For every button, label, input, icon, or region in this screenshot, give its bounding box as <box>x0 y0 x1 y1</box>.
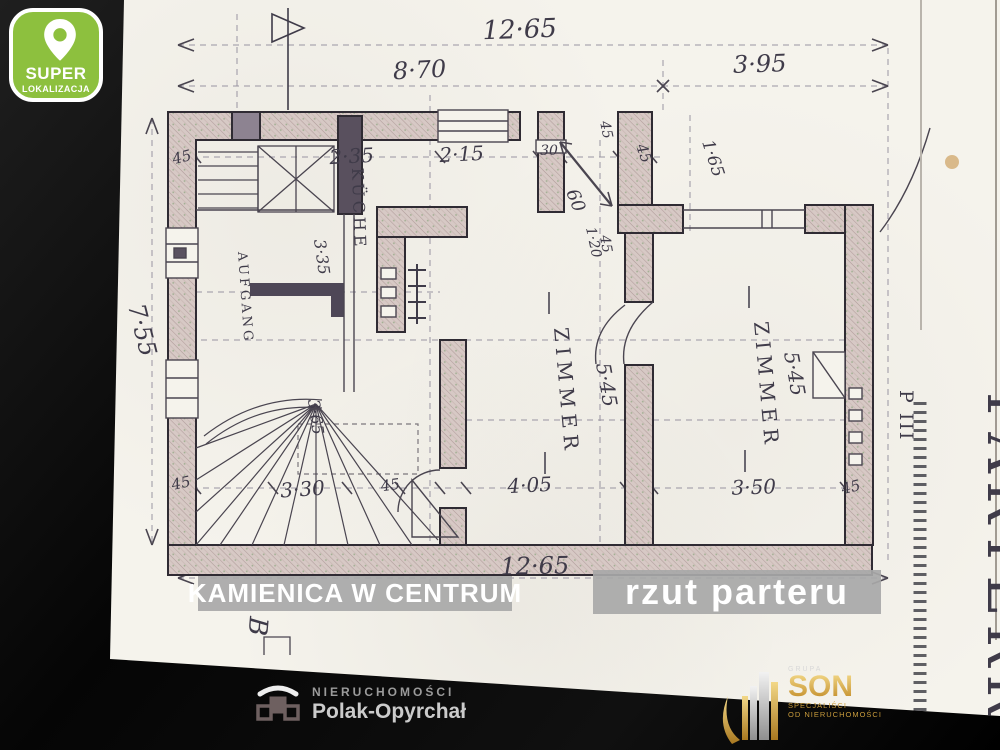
dimension-labels: 12·65 8·70 3·95 7·55 12·65 2·35 2·15 30 … <box>122 14 862 581</box>
son-tagline1: SPECJALIŚCI <box>788 701 882 710</box>
agency-line2: Polak-Opyrchał <box>312 700 466 724</box>
badge-subtitle: LOKALIZACJA <box>13 84 99 94</box>
dim-kitchen-d: 3·35 <box>310 238 334 276</box>
dim-top-right: 3·95 <box>733 49 787 79</box>
dim-stair-330: 3·30 <box>279 475 325 502</box>
super-location-badge: SUPER LOKALIZACJA <box>9 8 103 102</box>
dim-room1-w: 4·05 <box>506 472 553 498</box>
agency-logo-icon <box>254 682 302 726</box>
dim-room2-w: 3·50 <box>731 474 777 500</box>
son-name: SON <box>788 673 882 701</box>
sheet-code: P III <box>895 390 917 441</box>
thin-partitions <box>196 210 354 392</box>
north-arrow-icon <box>272 8 304 110</box>
dim-hall-545: 5·45 <box>591 361 622 409</box>
dim-kitchen-w: 2·35 <box>328 143 375 169</box>
dim-wing-165: 1·65 <box>697 137 728 179</box>
dim-45-b: 45 <box>596 119 616 141</box>
hall-label: AUFGANG <box>234 250 255 344</box>
dim-45-center: 45 <box>596 233 615 254</box>
dim-niche-30: 30 <box>540 143 558 159</box>
corner-note: B <box>241 614 273 637</box>
dim-top-left: 8·70 <box>392 55 447 86</box>
dim-top-total: 12·65 <box>482 14 557 47</box>
location-pin-icon <box>13 14 107 64</box>
agency-line1: NIERUCHOMOŚCI <box>312 685 466 699</box>
dim-lobby-60: 60 <box>561 186 589 215</box>
dim-room2-545: 5·45 <box>779 350 810 398</box>
group-logo-son: GRUPA SON SPECJALIŚCI OD NIERUCHOMOŚCI <box>718 666 882 750</box>
room-left-label: ZIMMER <box>549 326 584 456</box>
dim-left-total: 7·55 <box>122 301 162 360</box>
construction-lines <box>152 14 888 585</box>
son-tagline2: OD NIERUCHOMOŚCI <box>788 710 882 719</box>
property-caption: KAMIENICA W CENTRUM <box>198 576 512 611</box>
room-kitchen-label: KÜCHE <box>348 167 371 250</box>
dim-45-bb: 45 <box>379 475 401 496</box>
son-building-icon <box>718 666 784 750</box>
upper-stair-and-shaft <box>198 146 334 212</box>
plan-title-caption: rzut parteru <box>593 570 881 614</box>
sheet-title-parterre: PARTERRE <box>974 392 1000 716</box>
agency-logo-polak-opyrchal: NIERUCHOMOŚCI Polak-Opyrchał <box>254 682 466 726</box>
listing-image: 12·65 8·70 3·95 7·55 12·65 2·35 2·15 30 … <box>0 0 1000 750</box>
dim-kitchen-door: 2·15 <box>438 141 485 167</box>
badge-title: SUPER <box>13 64 99 84</box>
dim-stair-365: 3·65 <box>304 398 328 436</box>
radiator-symbol <box>408 264 426 324</box>
